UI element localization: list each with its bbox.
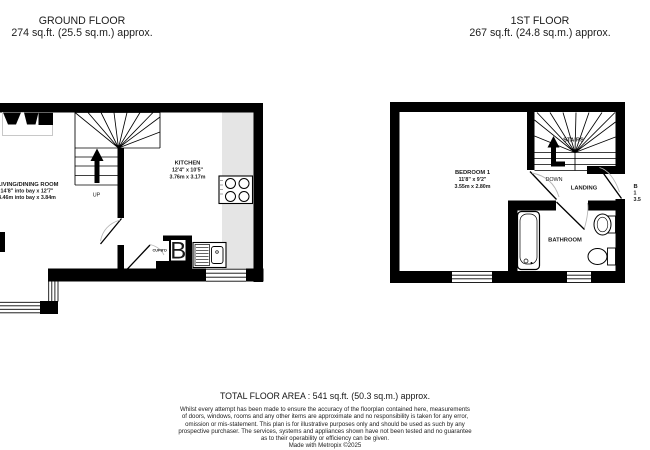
arrow-shaft xyxy=(551,145,556,167)
wall xyxy=(48,269,206,282)
toilet-cistern xyxy=(608,248,616,265)
living-dining-label: LIVING/DINING ROOM xyxy=(0,182,59,188)
wall xyxy=(254,103,264,282)
door-leaf xyxy=(557,202,585,230)
disclaimer: Whilst every attempt has been made to en… xyxy=(140,406,510,450)
chimney-jamb xyxy=(3,113,21,125)
wall xyxy=(527,112,535,170)
disclaimer-line: as to their operability or efficiency ca… xyxy=(140,435,510,442)
wall xyxy=(40,301,58,314)
disclaimer-line: Whilst every attempt has been made to en… xyxy=(140,406,510,413)
total-floor-area: TOTAL FLOOR AREA : 541 sq.ft. (50.3 sq.m… xyxy=(155,391,495,401)
living-dining-dims-imperial: 14'8" into bay x 12'7" xyxy=(1,189,54,195)
ground-floor-plan: B CUPB'D KITCHEN 12'4" x 10'5" 3.76m x 3… xyxy=(0,103,264,314)
wall xyxy=(508,201,518,284)
sink-bowl xyxy=(212,247,224,264)
landing-label: LANDING xyxy=(571,186,598,192)
down-label: DOWN xyxy=(545,177,562,183)
wall xyxy=(400,271,453,283)
wall xyxy=(0,232,5,252)
metropix-credit: Made with Metropix ©2025 xyxy=(140,442,510,449)
bathroom-door xyxy=(557,202,588,230)
toilet-bowl xyxy=(588,249,607,265)
wall xyxy=(390,102,400,283)
stairs-label: STAIRS xyxy=(563,138,584,144)
bath-drain xyxy=(531,262,533,264)
disclaimer-line: prospective purchaser. The services, sys… xyxy=(140,428,510,435)
chimney-jamb xyxy=(24,113,39,125)
living-dining-dims-metric: 4.46m into bay x 3.84m xyxy=(0,195,56,201)
disclaimer-line: omission or mis-statement. This plan is … xyxy=(140,421,510,428)
up-label: UP xyxy=(93,193,101,199)
bay-window-side xyxy=(49,282,58,302)
wall xyxy=(118,245,125,269)
door-leaf xyxy=(126,245,150,271)
wall xyxy=(588,201,625,211)
wall xyxy=(591,271,616,283)
toilet-icon xyxy=(588,248,616,265)
wall xyxy=(616,199,626,283)
arrow-head xyxy=(91,149,104,162)
bedroom2-dims-fragment: 3.5 xyxy=(634,197,641,203)
kitchen-dims-metric: 3.76m x 3.17m xyxy=(170,175,206,181)
wall xyxy=(616,102,626,174)
cupboard-label: CUPB'D xyxy=(153,249,168,253)
bay-window-front xyxy=(0,302,40,313)
bedroom2-label-fragment: B xyxy=(634,184,638,190)
wall xyxy=(246,269,264,282)
bedroom1-window xyxy=(452,272,492,283)
kitchen-window xyxy=(206,269,246,281)
first-floor-plan: BEDROOM 1 11'8" x 9'2" 3.55m x 2.80m STA… xyxy=(390,102,641,283)
bedroom2-dims-fragment: 1 xyxy=(634,191,637,197)
chimney-pier xyxy=(39,113,54,126)
door-leaf xyxy=(101,219,122,245)
bath-icon xyxy=(518,212,540,270)
bedroom1-dims-metric: 3.55m x 2.80m xyxy=(455,184,491,190)
bedroom1-dims-imperial: 11'8" x 9'2" xyxy=(459,177,487,183)
wall xyxy=(0,103,263,113)
kitchen-dims-imperial: 12'4" x 10'5" xyxy=(172,168,204,174)
living-room-door xyxy=(101,219,122,245)
kitchen-sink-icon xyxy=(193,243,226,268)
stairs-winders xyxy=(75,113,160,149)
bathroom-window xyxy=(567,272,591,283)
bathroom-label: BATHROOM xyxy=(548,238,582,244)
basin-icon xyxy=(594,214,616,235)
floorplan-canvas: B CUPB'D KITCHEN 12'4" x 10'5" 3.76m x 3… xyxy=(0,0,650,450)
boiler-b-icon: B xyxy=(170,238,186,265)
arrow-shaft xyxy=(95,160,100,183)
door-swing-arc xyxy=(585,203,588,228)
bedroom1-door xyxy=(530,172,559,200)
boiler-cupboard: B CUPB'D xyxy=(153,236,193,269)
wall xyxy=(492,271,567,283)
kitchen-label: KITCHEN xyxy=(175,161,201,167)
bedroom1-label: BEDROOM 1 xyxy=(455,170,491,176)
wall xyxy=(390,102,625,112)
chimney-breast xyxy=(3,113,54,136)
wall xyxy=(587,166,625,174)
stairs-winders xyxy=(535,113,616,153)
door-leaf xyxy=(530,172,557,200)
wall xyxy=(118,148,125,218)
hob-icon xyxy=(219,176,253,204)
disclaimer-line: of doors, windows, rooms and any other i… xyxy=(140,413,510,420)
